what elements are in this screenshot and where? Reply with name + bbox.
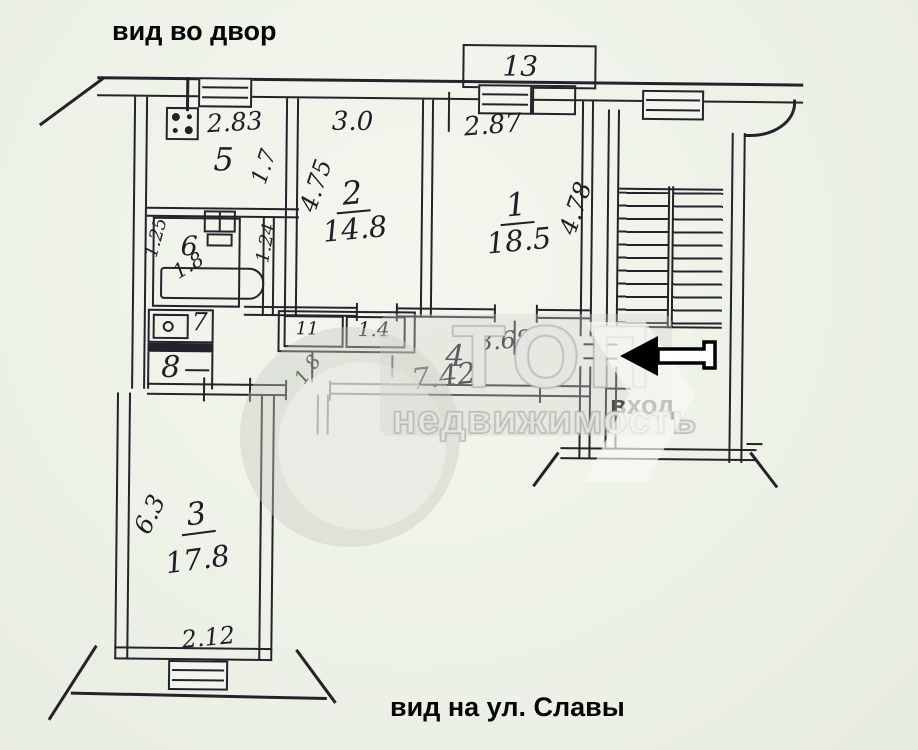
room3-depth-dim: 6.3 xyxy=(130,491,170,538)
window-stairwell xyxy=(642,90,704,121)
washbasin-drain xyxy=(163,321,174,332)
room2-number: 2 xyxy=(333,175,371,214)
wall-room3-right xyxy=(258,396,275,660)
wall-room3-notch xyxy=(317,395,329,435)
stair-bottom-edge xyxy=(618,326,722,329)
break-line-stair-right xyxy=(749,452,778,489)
kitchen-number: 5 xyxy=(213,143,234,175)
stair-flight-right xyxy=(672,192,723,327)
balcony-number: 13 xyxy=(502,52,538,80)
room2-depth-dim: 4.75 xyxy=(296,156,336,214)
break-line-bottom-left xyxy=(48,645,98,721)
wall-corridor-bottom xyxy=(147,383,285,396)
room3-area: 17.8 xyxy=(164,541,232,578)
wall-stub xyxy=(186,77,189,111)
wall-tick xyxy=(746,443,762,445)
wall-corridor-top xyxy=(538,309,590,320)
floor-plan-scan: вид во двор вход вид на ул. Славы 13 2.8… xyxy=(0,0,918,750)
window-kitchen xyxy=(198,77,252,108)
door-swing-mark xyxy=(583,357,617,359)
door-jamb xyxy=(536,305,538,323)
storage-number: 8 xyxy=(161,353,180,383)
closet-area: 1.8 xyxy=(292,352,325,388)
stove-icon xyxy=(166,107,199,140)
stair-flight-left xyxy=(618,192,669,327)
door-swing-mark xyxy=(584,343,618,345)
stove-burner xyxy=(173,128,178,133)
wc-number: 7 xyxy=(192,309,208,334)
closet-right-label: 1.4 xyxy=(358,319,390,339)
wall-right-lower xyxy=(578,366,591,458)
kitchen-width-dim: 2.83 xyxy=(206,108,263,136)
facade-line-bottom xyxy=(71,692,327,700)
dimension-leader xyxy=(391,355,393,377)
closet-left-label: 11 xyxy=(296,320,319,338)
sink-basin xyxy=(207,233,233,246)
apartment-plan: 13 2.83 5 1.7 4.75 3.0 2 14.8 2.87 1 18.… xyxy=(0,0,918,750)
dimension-tick xyxy=(539,379,541,403)
entrance-arrow-icon xyxy=(616,332,720,380)
room2-width-dim: 3.0 xyxy=(332,109,374,135)
room1-number: 1 xyxy=(497,187,535,226)
corridor-width-dim: 3.68 xyxy=(477,326,532,354)
wall-stair-bottom xyxy=(560,447,756,461)
stove-burner xyxy=(187,114,192,119)
room1-width-dim: 2.87 xyxy=(463,110,523,140)
dimension-tick xyxy=(203,377,205,401)
dimension-tick xyxy=(448,92,450,132)
dimension-leader xyxy=(185,369,209,371)
room1-area: 18.5 xyxy=(485,224,552,259)
room3-number: 3 xyxy=(178,497,216,536)
window-room3 xyxy=(168,660,228,691)
door-swing-mark xyxy=(605,388,631,390)
kitchen-depth-dim: 1.7 xyxy=(249,147,281,187)
sink-divider xyxy=(219,211,221,231)
balcony-door xyxy=(532,85,576,115)
door-jamb xyxy=(329,381,331,401)
stove-burner xyxy=(172,113,180,121)
room2-area: 14.8 xyxy=(322,212,389,247)
bath-right-dim: 1.24 xyxy=(254,222,279,265)
door-jamb xyxy=(285,380,287,400)
break-line-stair-left xyxy=(532,452,559,488)
door-jamb xyxy=(494,304,496,322)
dimension-tick xyxy=(249,378,251,402)
wall-room2-room1 xyxy=(420,100,434,318)
break-line-top-left xyxy=(39,76,105,126)
wall-corridor-bottom xyxy=(329,383,589,398)
stove-burner xyxy=(185,126,193,134)
wall-stair-right xyxy=(728,133,745,463)
room3-window-dim: 2.12 xyxy=(180,623,235,652)
wall-corner-curve xyxy=(744,99,796,138)
